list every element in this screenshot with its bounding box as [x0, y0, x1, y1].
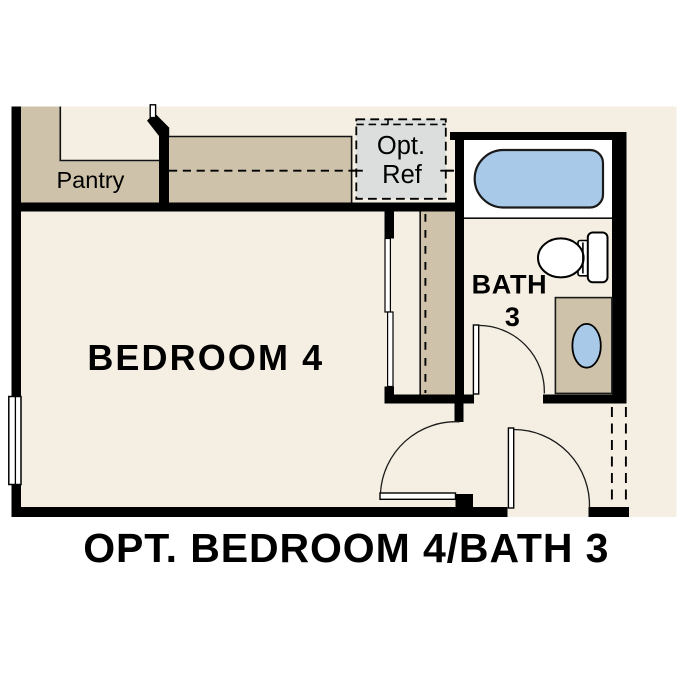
- svg-text:BEDROOM 4: BEDROOM 4: [87, 337, 324, 378]
- svg-text:Opt.: Opt.: [377, 132, 425, 160]
- svg-text:Pantry: Pantry: [57, 167, 125, 193]
- svg-text:Ref: Ref: [382, 161, 423, 189]
- svg-text:3: 3: [505, 302, 520, 332]
- svg-text:OPT. BEDROOM 4/BATH 3: OPT. BEDROOM 4/BATH 3: [83, 525, 609, 571]
- svg-text:BATH: BATH: [472, 269, 548, 299]
